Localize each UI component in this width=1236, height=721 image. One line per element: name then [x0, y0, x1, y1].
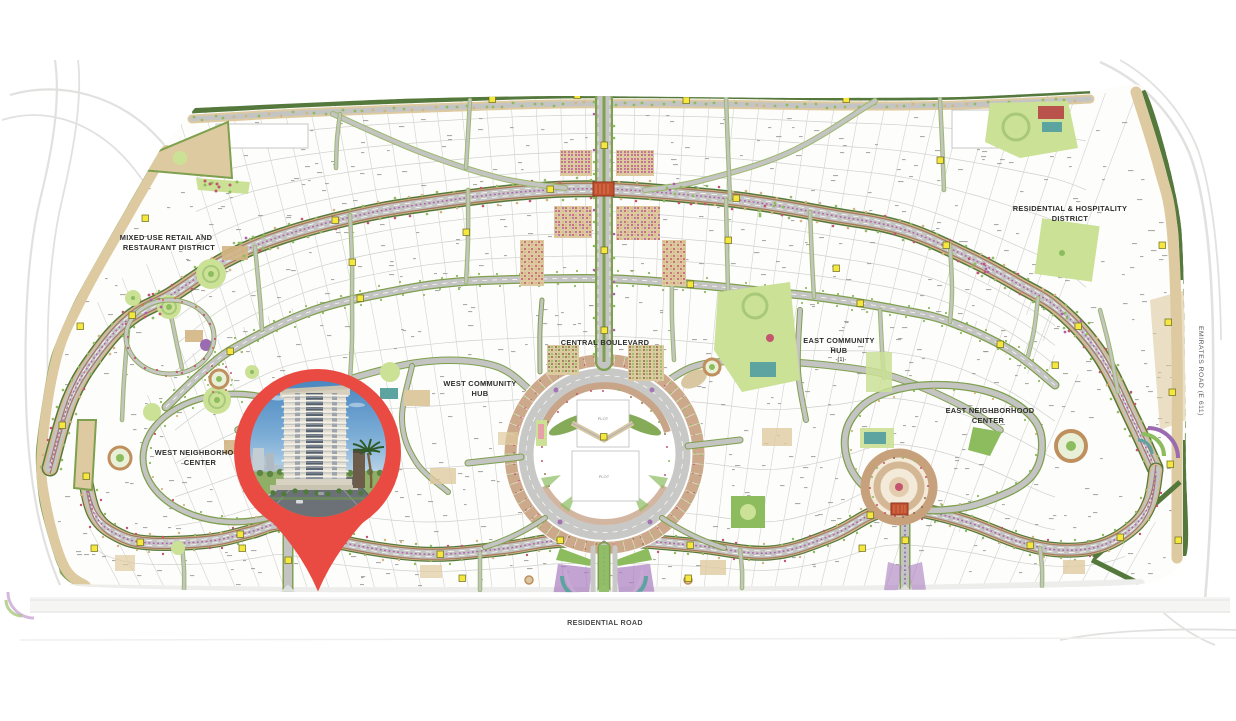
svg-text:PLOT: PLOT	[599, 474, 610, 479]
svg-text:WEST NEIGHBORHOOD: WEST NEIGHBORHOOD	[155, 448, 246, 457]
svg-text:EMIRATES ROAD (E 611): EMIRATES ROAD (E 611)	[1197, 326, 1204, 416]
svg-text:MIXED USE RETAIL AND: MIXED USE RETAIL AND	[120, 233, 213, 242]
svg-text:-(1)-: -(1)-	[836, 357, 847, 363]
svg-text:CENTER: CENTER	[184, 458, 217, 467]
svg-text:CENTER: CENTER	[972, 416, 1005, 425]
svg-text:HUB: HUB	[472, 389, 489, 398]
svg-text:CENTRAL BOULEVARD: CENTRAL BOULEVARD	[561, 338, 650, 347]
svg-text:PLOT: PLOT	[598, 416, 609, 421]
svg-text:RESTAURANT DISTRICT: RESTAURANT DISTRICT	[123, 243, 215, 252]
svg-text:RESIDENTIAL ROAD: RESIDENTIAL ROAD	[567, 618, 643, 627]
svg-text:WEST COMMUNITY: WEST COMMUNITY	[443, 379, 516, 388]
svg-text:EAST COMMUNITY: EAST COMMUNITY	[803, 336, 875, 345]
svg-text:DISTRICT: DISTRICT	[1052, 214, 1089, 223]
svg-text:RESIDENTIAL & HOSPITALITY: RESIDENTIAL & HOSPITALITY	[1013, 204, 1127, 213]
svg-text:HUB: HUB	[831, 346, 848, 355]
svg-text:EAST NEIGHBORHOOD: EAST NEIGHBORHOOD	[946, 406, 1035, 415]
